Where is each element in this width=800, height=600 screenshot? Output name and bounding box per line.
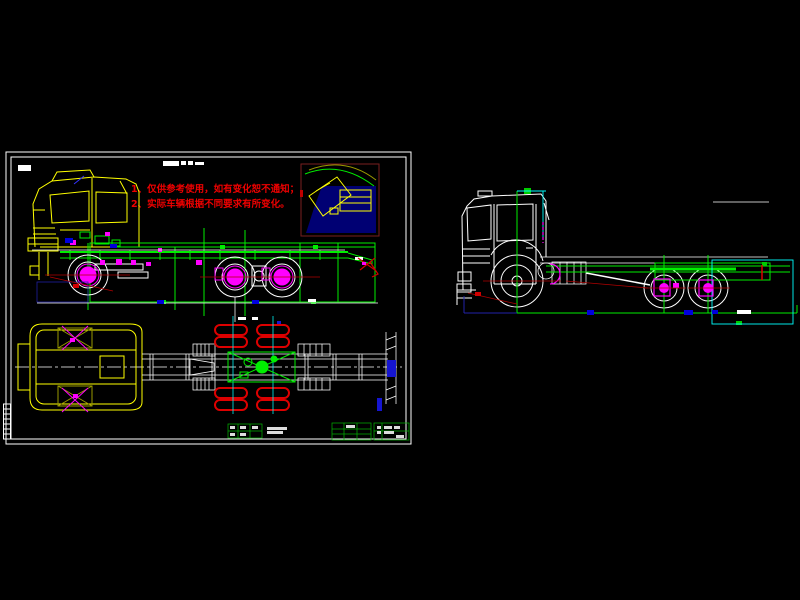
notes-annotation: 1、仅供参考使用，如有变化恕不通知； 2、实际车辆根据不同要求有所变化。 [131, 183, 299, 210]
mirror-arm-blue [74, 176, 84, 184]
sheet-title-marks [18, 161, 204, 171]
truck-chassis-drawing: 1、仅供参考使用，如有变化恕不通知； 2、实际车辆根据不同要求有所变化。 [0, 0, 800, 600]
inset-fill-region [306, 186, 376, 233]
plan-dim-text-marks [238, 317, 258, 320]
corner-label [18, 165, 31, 171]
plan-view [15, 316, 402, 414]
chassis-right-white [538, 202, 769, 285]
tilt-arc-olive [309, 165, 376, 180]
note-line-1: 1、仅供参考使用，如有变化恕不通知； [131, 183, 299, 195]
cab-tilt-inset [300, 164, 379, 236]
cad-drawing-canvas: 1、仅供参考使用，如有变化恕不通知； 2、实际车辆根据不同要求有所变化。 [0, 0, 800, 600]
dim-text-marks [308, 257, 363, 302]
front-axle-magenta-plan [62, 326, 88, 412]
right-side-view [457, 188, 797, 325]
axle-details-right-magenta [543, 222, 713, 296]
rear-tires-plan [215, 325, 289, 410]
title-block-text-marks [230, 425, 404, 438]
chassis-right-green [517, 188, 797, 325]
revision-strip [4, 404, 11, 439]
title-blocks [228, 423, 409, 440]
dimensions-right-cyan [517, 191, 793, 324]
baseline-navy [464, 296, 517, 313]
note-line-2: 2、实际车辆根据不同要求有所变化。 [131, 198, 290, 210]
dimension-lines-side [32, 250, 378, 322]
suspension-plan-green [228, 352, 295, 382]
dim-text-right-marks [737, 310, 751, 314]
inset-red-tick [300, 190, 303, 197]
frame-rails-plan [142, 332, 396, 404]
